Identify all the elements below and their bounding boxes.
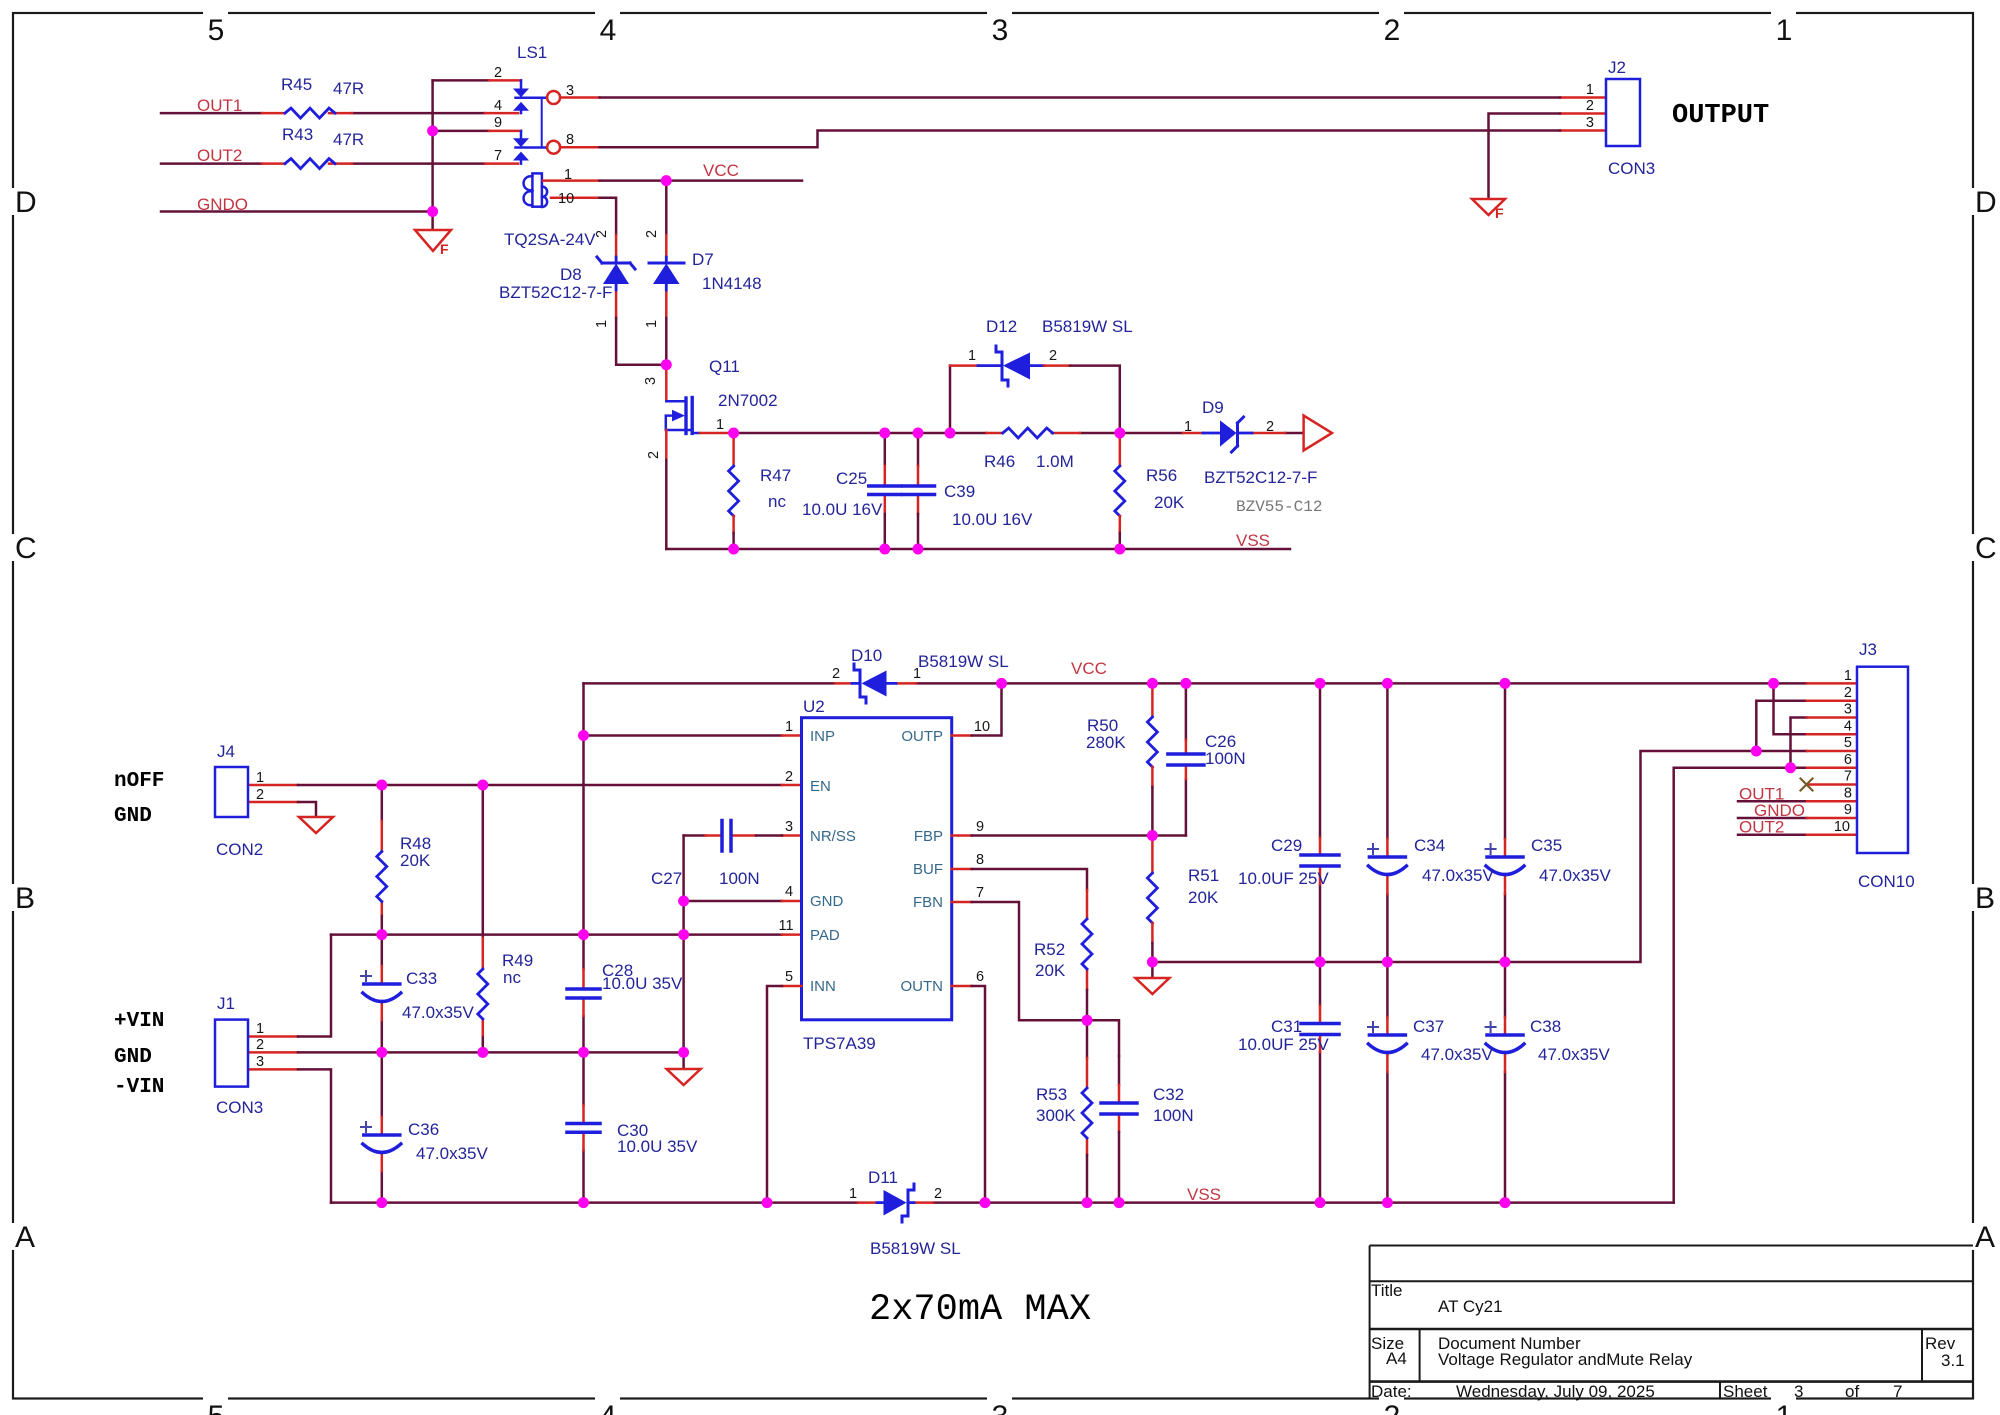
svg-text:J3: J3 [1859, 640, 1877, 659]
svg-text:C39: C39 [944, 482, 975, 501]
svg-text:C37: C37 [1413, 1017, 1444, 1036]
svg-text:B: B [15, 882, 35, 915]
svg-text:10.0U 16V: 10.0U 16V [952, 510, 1033, 529]
svg-text:1: 1 [1776, 14, 1793, 47]
svg-text:Sheet: Sheet [1723, 1382, 1768, 1401]
svg-text:4: 4 [600, 14, 617, 47]
svg-text:300K: 300K [1036, 1106, 1076, 1125]
svg-text:20K: 20K [400, 851, 431, 870]
svg-text:8: 8 [566, 132, 574, 148]
svg-text:-VIN: -VIN [114, 1076, 164, 1099]
svg-text:1: 1 [716, 417, 724, 433]
svg-text:Q11: Q11 [709, 357, 740, 376]
svg-text:5: 5 [1844, 735, 1852, 751]
svg-text:2: 2 [1844, 685, 1852, 701]
svg-text:7: 7 [494, 148, 502, 164]
svg-text:2: 2 [644, 230, 660, 238]
svg-text:1: 1 [256, 770, 264, 786]
svg-text:FBN: FBN [913, 894, 943, 911]
svg-text:7: 7 [1893, 1382, 1902, 1401]
svg-text:INN: INN [810, 978, 836, 995]
svg-text:4: 4 [600, 1400, 617, 1415]
svg-text:D11: D11 [868, 1168, 898, 1187]
svg-text:1: 1 [564, 167, 572, 183]
svg-text:EN: EN [810, 778, 831, 795]
svg-text:10.0UF 25V: 10.0UF 25V [1238, 869, 1329, 888]
svg-text:C38: C38 [1530, 1017, 1561, 1036]
svg-text:OUTPUT: OUTPUT [1672, 101, 1769, 131]
svg-text:C29: C29 [1271, 836, 1302, 855]
svg-text:R56: R56 [1146, 466, 1177, 485]
svg-text:FBP: FBP [914, 828, 943, 845]
svg-text:C35: C35 [1531, 836, 1562, 855]
svg-text:C32: C32 [1153, 1085, 1184, 1104]
svg-text:1N4148: 1N4148 [702, 274, 762, 293]
svg-text:280K: 280K [1086, 733, 1126, 752]
svg-text:nOFF: nOFF [114, 770, 164, 793]
svg-text:3: 3 [785, 819, 793, 835]
svg-text:PAD: PAD [810, 927, 840, 944]
svg-text:BUF: BUF [913, 861, 943, 878]
svg-text:2: 2 [1384, 1400, 1401, 1415]
svg-text:B5819W SL: B5819W SL [918, 652, 1009, 671]
svg-text:7: 7 [976, 885, 984, 901]
svg-text:10: 10 [974, 719, 990, 735]
svg-text:TQ2SA-24V: TQ2SA-24V [504, 230, 596, 249]
svg-text:INP: INP [810, 728, 835, 745]
svg-text:3: 3 [992, 1400, 1009, 1415]
svg-text:R47: R47 [760, 466, 791, 485]
svg-text:2: 2 [832, 666, 840, 682]
svg-text:47R: 47R [333, 79, 364, 98]
svg-text:10.0U 35V: 10.0U 35V [602, 974, 683, 993]
svg-text:8: 8 [976, 852, 984, 868]
svg-text:47.0x35V: 47.0x35V [416, 1144, 488, 1163]
svg-text:D: D [15, 186, 37, 219]
svg-text:2: 2 [1266, 419, 1274, 435]
svg-text:3: 3 [566, 83, 574, 99]
svg-text:2: 2 [646, 451, 662, 459]
svg-text:D9: D9 [1202, 398, 1224, 417]
svg-text:10: 10 [1834, 819, 1850, 835]
svg-text:GND: GND [114, 805, 152, 828]
svg-text:C36: C36 [408, 1120, 439, 1139]
svg-text:D8: D8 [560, 265, 582, 284]
svg-text:2: 2 [1049, 348, 1057, 364]
svg-text:2: 2 [494, 65, 502, 81]
svg-text:10: 10 [558, 191, 574, 207]
svg-text:2N7002: 2N7002 [718, 391, 778, 410]
svg-text:R43: R43 [282, 125, 313, 144]
svg-text:2: 2 [1384, 14, 1401, 47]
svg-text:+VIN: +VIN [114, 1010, 164, 1033]
svg-text:1: 1 [1776, 1400, 1793, 1415]
svg-text:B5819W SL: B5819W SL [1042, 317, 1133, 336]
svg-text:3: 3 [992, 14, 1009, 47]
svg-text:9: 9 [1844, 802, 1852, 818]
svg-text:1: 1 [256, 1021, 264, 1037]
svg-text:1: 1 [644, 320, 660, 328]
svg-text:C27: C27 [651, 869, 682, 888]
svg-text:3: 3 [1794, 1382, 1803, 1401]
svg-text:B5819W SL: B5819W SL [870, 1239, 961, 1258]
svg-text:100N: 100N [1205, 749, 1246, 768]
svg-text:10.0UF 25V: 10.0UF 25V [1238, 1035, 1329, 1054]
svg-text:8: 8 [1844, 786, 1852, 802]
svg-text:D: D [1975, 186, 1997, 219]
svg-text:C33: C33 [406, 969, 437, 988]
svg-text:C31: C31 [1271, 1017, 1302, 1036]
svg-text:5: 5 [785, 969, 793, 985]
svg-text:47.0x35V: 47.0x35V [402, 1003, 474, 1022]
svg-text:F: F [440, 241, 449, 257]
svg-text:4: 4 [494, 98, 502, 114]
svg-text:47R: 47R [333, 130, 364, 149]
svg-text:1: 1 [594, 320, 610, 328]
svg-text:47.0x35V: 47.0x35V [1539, 866, 1611, 885]
svg-text:VCC: VCC [1071, 659, 1107, 678]
svg-text:of: of [1845, 1382, 1859, 1401]
svg-text:2: 2 [934, 1186, 942, 1202]
svg-text:OUTN: OUTN [901, 978, 944, 995]
svg-text:6: 6 [1844, 752, 1852, 768]
svg-text:OUT2: OUT2 [1739, 818, 1784, 837]
svg-text:3.1: 3.1 [1941, 1351, 1965, 1370]
svg-text:R46: R46 [984, 452, 1015, 471]
svg-text:9: 9 [976, 819, 984, 835]
svg-text:A: A [1975, 1221, 1995, 1254]
svg-text:2: 2 [594, 230, 610, 238]
svg-text:A: A [15, 1221, 35, 1254]
svg-text:5: 5 [208, 1400, 225, 1415]
svg-text:2x70mA MAX: 2x70mA MAX [869, 1289, 1091, 1331]
svg-text:47.0x35V: 47.0x35V [1538, 1045, 1610, 1064]
svg-text:A4: A4 [1386, 1349, 1407, 1368]
svg-text:R52: R52 [1034, 940, 1065, 959]
svg-text:6: 6 [976, 969, 984, 985]
svg-text:2: 2 [256, 1037, 264, 1053]
svg-text:Wednesday, July 09, 2025: Wednesday, July 09, 2025 [1456, 1382, 1655, 1401]
svg-text:4: 4 [785, 884, 793, 900]
svg-text:BZT52C12-7-F: BZT52C12-7-F [499, 283, 612, 302]
svg-text:Voltage Regulator andMute Rela: Voltage Regulator andMute Relay [1438, 1350, 1693, 1369]
svg-text:10.0U 35V: 10.0U 35V [617, 1137, 698, 1156]
svg-text:4: 4 [1844, 719, 1852, 735]
svg-text:1: 1 [1844, 668, 1852, 684]
svg-text:R51: R51 [1188, 866, 1219, 885]
svg-text:3: 3 [1586, 115, 1594, 131]
svg-text:3: 3 [256, 1054, 264, 1070]
svg-text:2: 2 [785, 769, 793, 785]
svg-text:F: F [1495, 205, 1504, 221]
svg-text:D7: D7 [692, 250, 714, 269]
svg-text:R53: R53 [1036, 1085, 1067, 1104]
svg-text:OUTP: OUTP [901, 728, 943, 745]
svg-text:9: 9 [494, 115, 502, 131]
svg-text:VSS: VSS [1236, 531, 1270, 550]
svg-text:U2: U2 [803, 697, 825, 716]
svg-text:47.0x35V: 47.0x35V [1422, 866, 1494, 885]
svg-text:1: 1 [785, 719, 793, 735]
svg-text:BZV55-C12: BZV55-C12 [1236, 498, 1322, 516]
svg-text:1: 1 [913, 666, 921, 682]
svg-text:VSS: VSS [1187, 1185, 1221, 1204]
svg-text:20K: 20K [1188, 888, 1219, 907]
svg-text:OUT2: OUT2 [197, 146, 242, 165]
svg-text:BZT52C12-7-F: BZT52C12-7-F [1204, 468, 1317, 487]
svg-text:CON2: CON2 [216, 840, 263, 859]
svg-text:nc: nc [768, 492, 786, 511]
svg-text:NR/SS: NR/SS [810, 828, 856, 845]
svg-text:3: 3 [1844, 702, 1852, 718]
svg-text:C34: C34 [1414, 836, 1445, 855]
svg-text:D10: D10 [851, 646, 882, 665]
svg-text:10.0U 16V: 10.0U 16V [802, 500, 883, 519]
svg-text:3: 3 [643, 377, 659, 385]
svg-text:GND: GND [810, 893, 844, 910]
svg-text:7: 7 [1844, 769, 1852, 785]
svg-text:J2: J2 [1608, 58, 1626, 77]
svg-text:1: 1 [849, 1186, 857, 1202]
svg-text:2: 2 [1586, 98, 1594, 114]
svg-text:1: 1 [968, 348, 976, 364]
svg-text:TPS7A39: TPS7A39 [803, 1034, 876, 1053]
svg-text:C: C [1975, 532, 1997, 565]
svg-text:1: 1 [1586, 82, 1594, 98]
svg-text:100N: 100N [1153, 1106, 1194, 1125]
svg-text:CON3: CON3 [1608, 159, 1655, 178]
svg-text:47.0x35V: 47.0x35V [1421, 1045, 1493, 1064]
svg-text:AT Cy21: AT Cy21 [1438, 1297, 1503, 1316]
svg-text:VCC: VCC [703, 161, 739, 180]
svg-text:GND: GND [114, 1046, 152, 1069]
svg-text:5: 5 [208, 14, 225, 47]
svg-text:OUT1: OUT1 [197, 96, 242, 115]
svg-text:Date:: Date: [1371, 1382, 1412, 1401]
svg-text:GNDO: GNDO [197, 195, 248, 214]
svg-text:CON3: CON3 [216, 1098, 263, 1117]
svg-text:20K: 20K [1035, 961, 1066, 980]
svg-text:R45: R45 [281, 75, 312, 94]
svg-text:J4: J4 [217, 742, 235, 761]
svg-text:1.0M: 1.0M [1036, 452, 1074, 471]
svg-text:C25: C25 [836, 469, 867, 488]
svg-text:CON10: CON10 [1858, 872, 1915, 891]
svg-text:20K: 20K [1154, 493, 1185, 512]
svg-text:nc: nc [503, 968, 521, 987]
svg-text:B: B [1975, 882, 1995, 915]
svg-text:Title: Title [1371, 1281, 1403, 1300]
svg-text:C: C [15, 532, 37, 565]
svg-text:D12: D12 [986, 317, 1017, 336]
svg-text:2: 2 [256, 787, 264, 803]
svg-text:J1: J1 [217, 994, 235, 1013]
svg-text:1: 1 [1184, 419, 1192, 435]
svg-text:11: 11 [778, 918, 793, 934]
svg-text:LS1: LS1 [517, 43, 547, 62]
svg-text:100N: 100N [719, 869, 760, 888]
